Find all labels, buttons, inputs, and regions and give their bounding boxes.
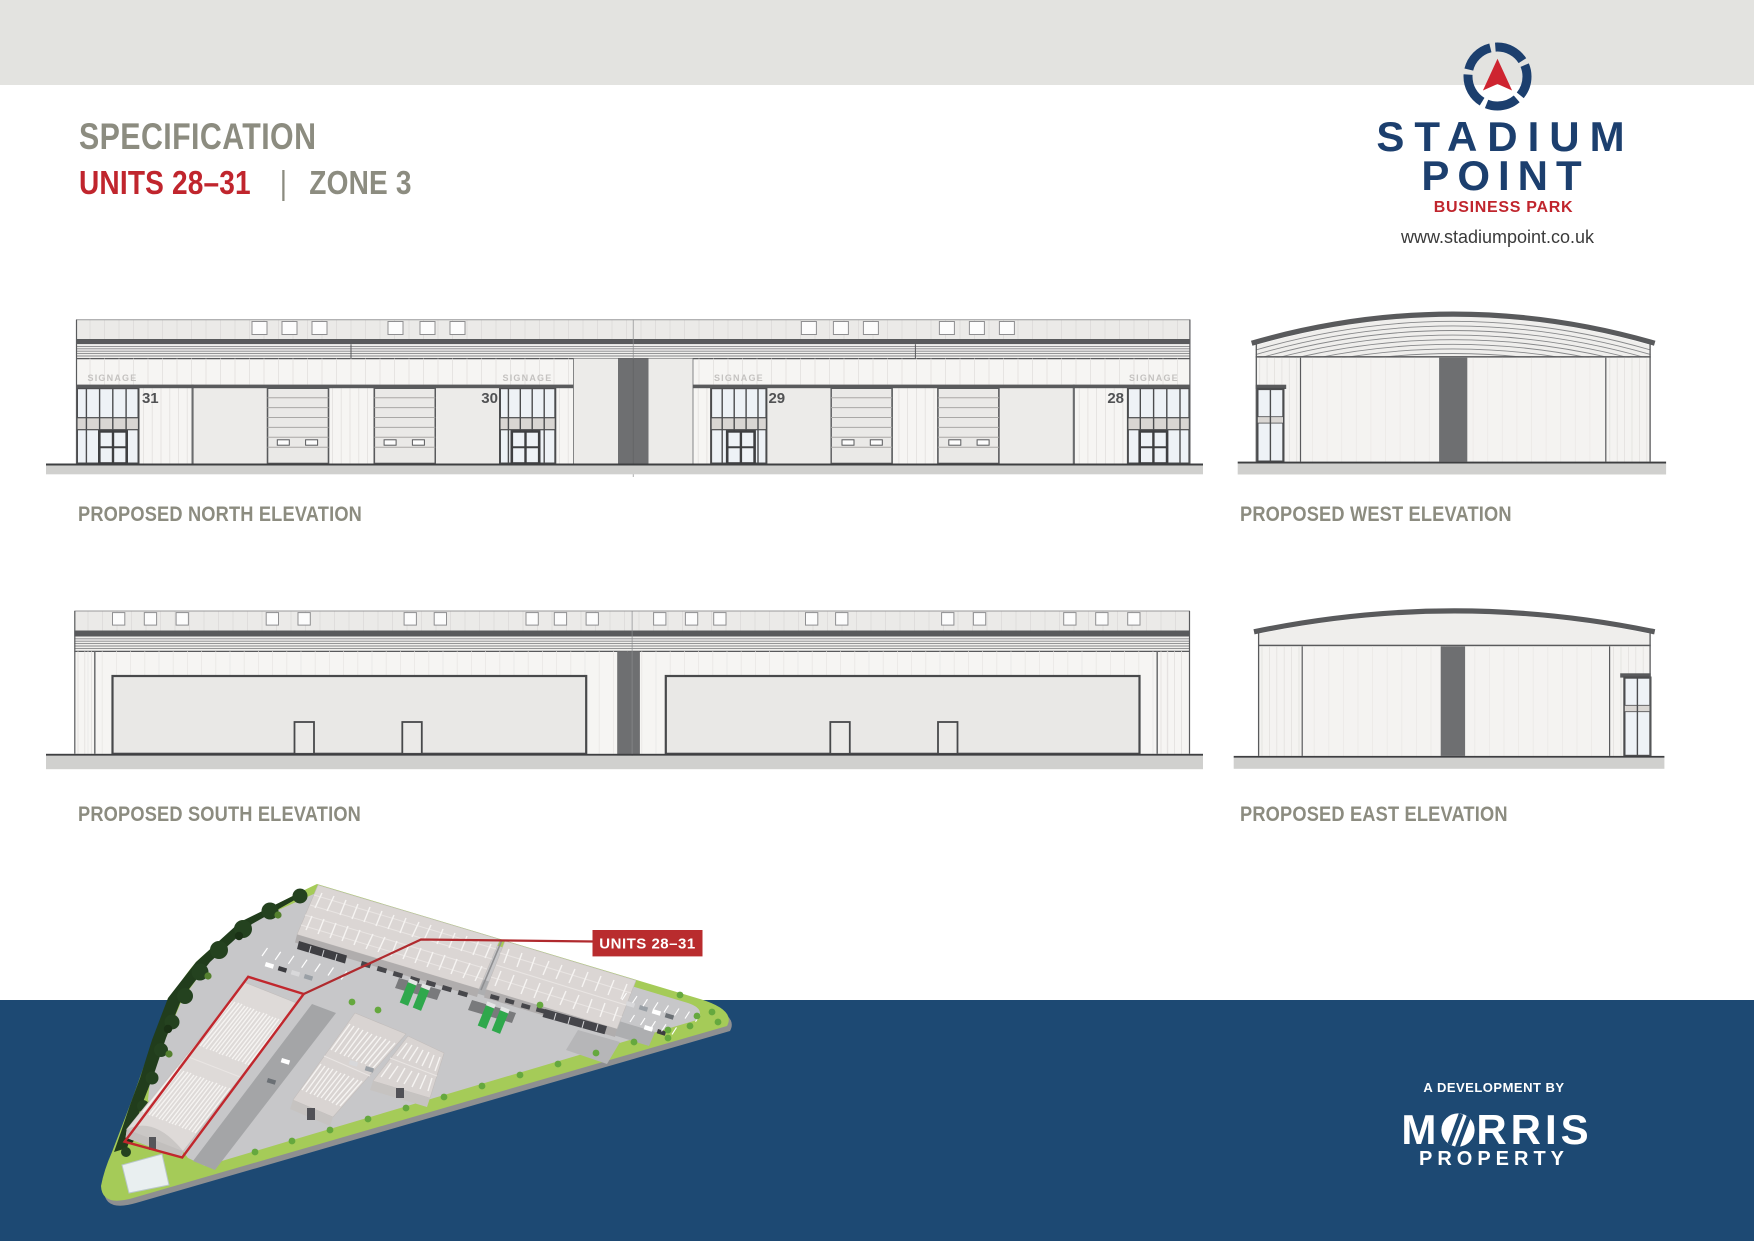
svg-text:SIGNAGE: SIGNAGE — [88, 373, 138, 383]
svg-text:SIGNAGE: SIGNAGE — [1129, 373, 1179, 383]
svg-text:SIGNAGE: SIGNAGE — [714, 373, 764, 383]
svg-text:28: 28 — [1107, 390, 1124, 407]
svg-text:29: 29 — [768, 390, 785, 407]
svg-text:UNITS 28–31: UNITS 28–31 — [599, 936, 695, 953]
svg-text:31: 31 — [142, 390, 159, 407]
svg-text:SIGNAGE: SIGNAGE — [503, 373, 553, 383]
svg-text:30: 30 — [481, 390, 498, 407]
